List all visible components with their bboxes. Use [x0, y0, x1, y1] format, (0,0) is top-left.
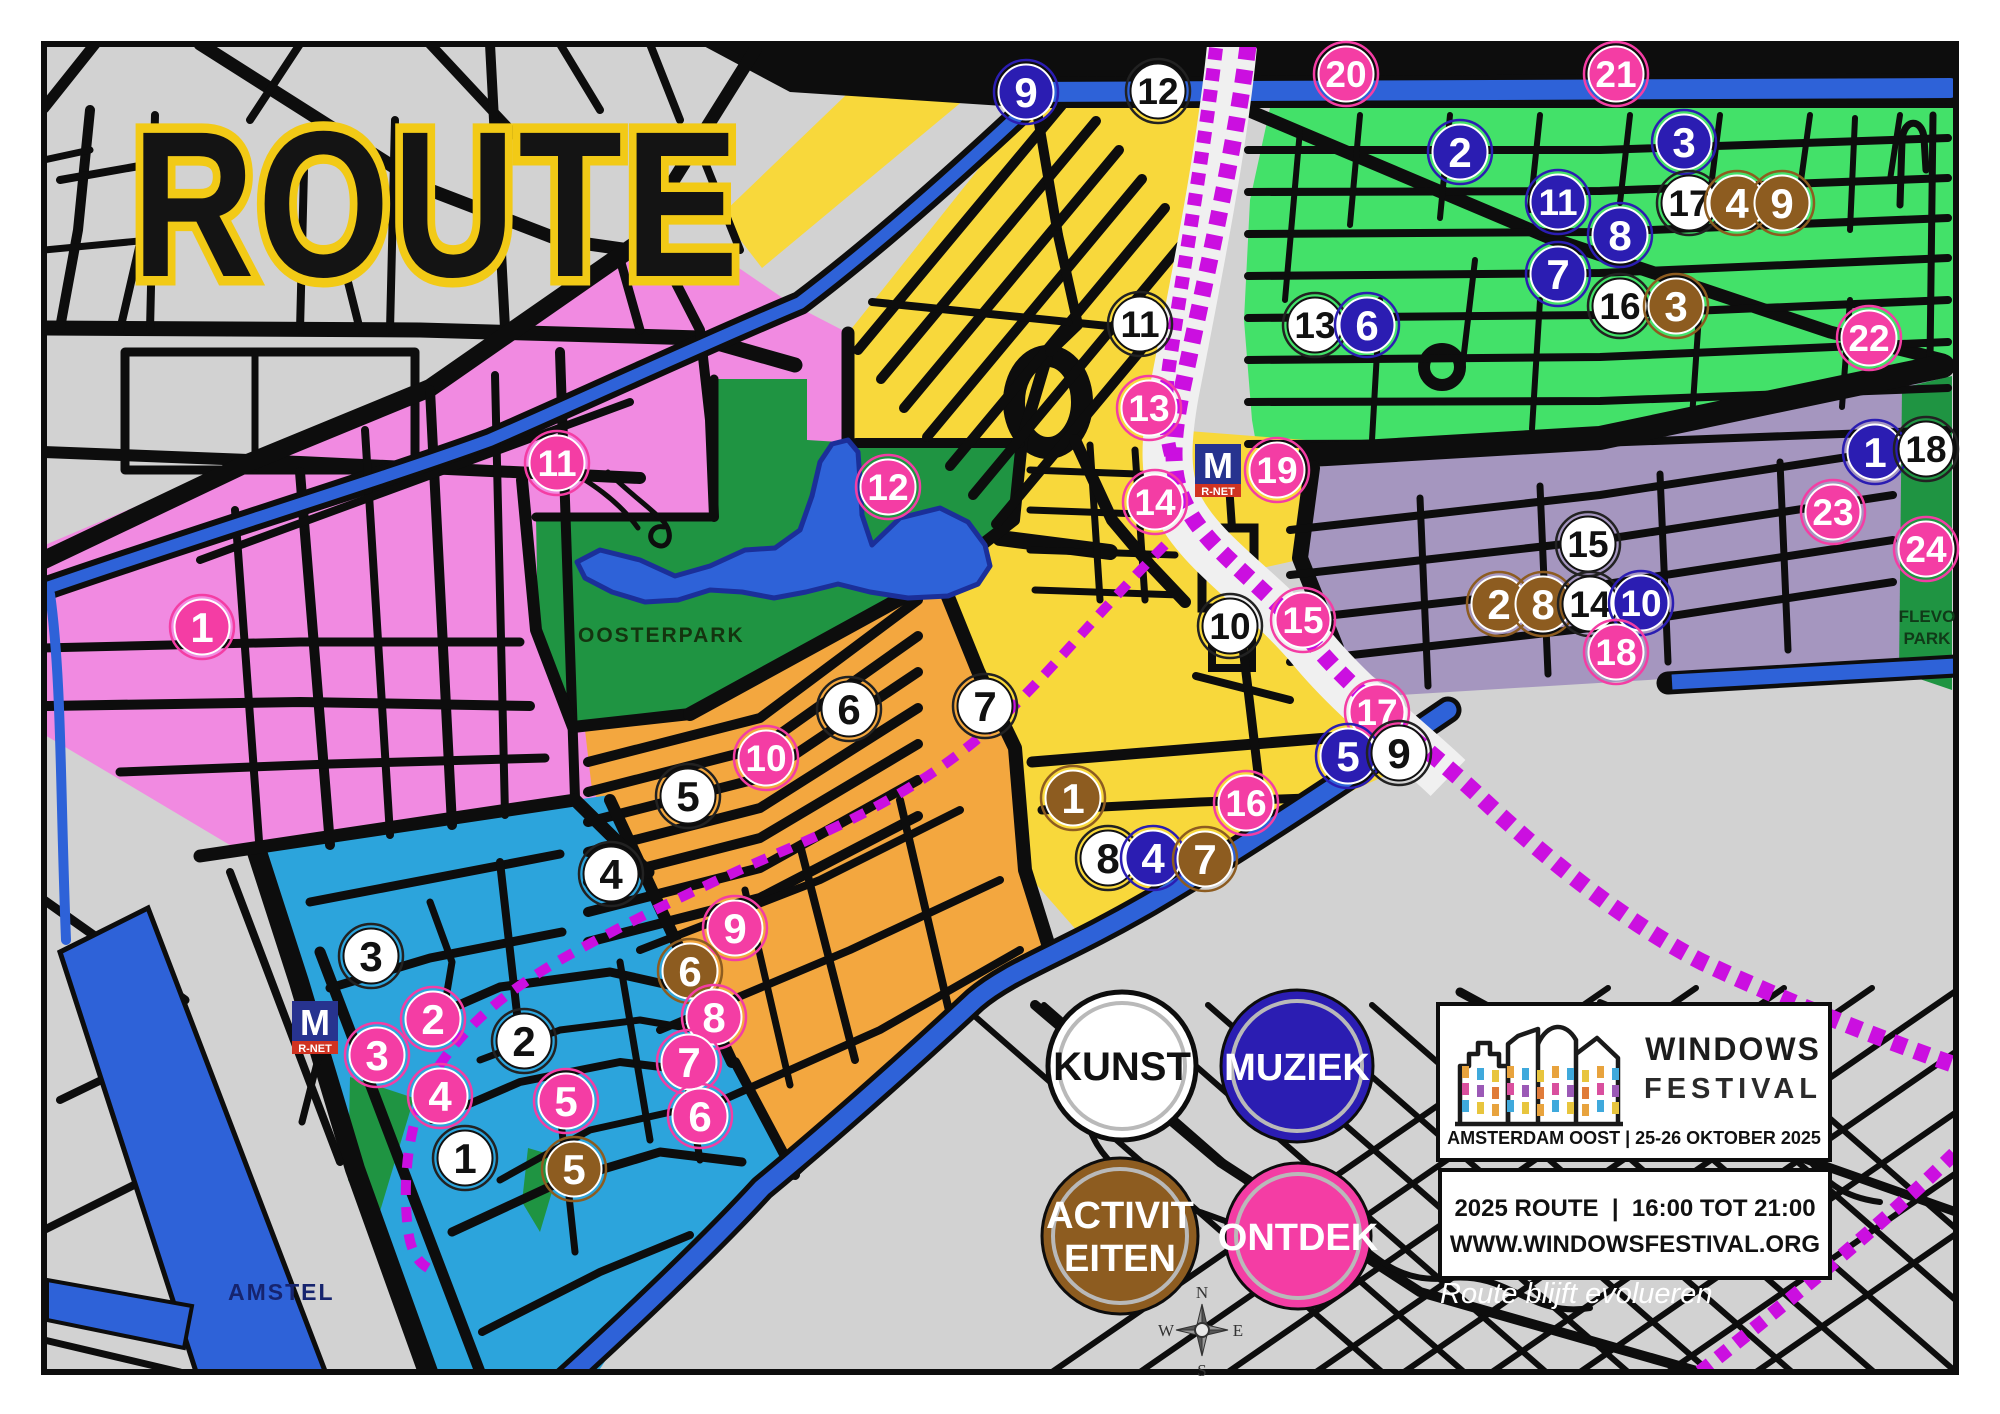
- svg-text:10: 10: [1209, 606, 1250, 647]
- svg-text:1: 1: [1863, 429, 1886, 476]
- svg-text:7: 7: [973, 683, 996, 730]
- svg-text:4: 4: [1141, 835, 1165, 882]
- svg-text:10: 10: [745, 738, 786, 779]
- svg-text:8: 8: [1096, 835, 1119, 882]
- svg-text:9: 9: [1387, 730, 1410, 777]
- svg-text:5: 5: [1336, 733, 1359, 780]
- svg-text:3: 3: [365, 1032, 388, 1079]
- svg-text:AMSTERDAM OOST | 25-26 OKTOBER: AMSTERDAM OOST | 25-26 OKTOBER 2025: [1447, 1128, 1821, 1148]
- svg-text:MUZIEK: MUZIEK: [1224, 1047, 1370, 1089]
- svg-text:1: 1: [190, 604, 213, 651]
- svg-text:AMSTEL: AMSTEL: [228, 1279, 335, 1305]
- svg-text:3: 3: [1664, 283, 1687, 330]
- svg-text:16: 16: [1599, 286, 1640, 327]
- svg-text:18: 18: [1595, 632, 1636, 673]
- svg-text:9: 9: [1014, 69, 1037, 116]
- svg-text:11: 11: [1538, 182, 1577, 223]
- svg-text:2025 ROUTE | 16:00 TOT 21:00: 2025 ROUTE | 16:00 TOT 21:00: [1454, 1195, 1815, 1222]
- svg-text:6: 6: [688, 1093, 711, 1140]
- svg-text:FESTIVAL: FESTIVAL: [1644, 1073, 1822, 1105]
- svg-text:16: 16: [1225, 783, 1266, 824]
- svg-text:13: 13: [1294, 305, 1335, 346]
- svg-text:3: 3: [1672, 119, 1695, 166]
- svg-text:R-NET: R-NET: [298, 1043, 332, 1055]
- svg-text:1: 1: [1061, 775, 1084, 822]
- svg-text:M: M: [300, 1002, 330, 1043]
- svg-text:5: 5: [676, 773, 699, 820]
- svg-text:N: N: [1196, 1283, 1208, 1302]
- svg-text:18: 18: [1905, 429, 1946, 470]
- svg-text:22: 22: [1848, 318, 1889, 359]
- svg-text:7: 7: [1193, 836, 1216, 883]
- svg-text:EITEN: EITEN: [1064, 1238, 1176, 1280]
- svg-text:15: 15: [1282, 600, 1323, 641]
- svg-text:KUNST: KUNST: [1053, 1045, 1191, 1089]
- svg-text:6: 6: [837, 686, 860, 733]
- svg-text:17: 17: [1668, 183, 1709, 224]
- svg-text:1: 1: [453, 1135, 476, 1182]
- svg-text:ONTDEK: ONTDEK: [1218, 1217, 1379, 1259]
- svg-text:2: 2: [1448, 129, 1471, 176]
- svg-text:7: 7: [1546, 251, 1569, 298]
- svg-text:20: 20: [1325, 54, 1366, 95]
- svg-text:23: 23: [1812, 492, 1853, 533]
- svg-text:14: 14: [1134, 482, 1176, 523]
- svg-text:5: 5: [554, 1078, 577, 1125]
- svg-text:M: M: [1203, 445, 1233, 486]
- svg-text:2: 2: [512, 1018, 535, 1065]
- svg-text:4: 4: [1725, 180, 1749, 227]
- svg-text:E: E: [1233, 1321, 1243, 1340]
- svg-text:5: 5: [562, 1146, 585, 1193]
- svg-text:9: 9: [723, 905, 746, 952]
- svg-text:10: 10: [1620, 583, 1661, 624]
- svg-text:8: 8: [1608, 212, 1631, 259]
- svg-text:15: 15: [1567, 524, 1608, 565]
- svg-text:PARK: PARK: [1904, 629, 1952, 648]
- svg-text:W: W: [1158, 1321, 1175, 1340]
- svg-text:OOSTERPARK: OOSTERPARK: [578, 624, 745, 647]
- svg-text:WINDOWS: WINDOWS: [1645, 1031, 1821, 1067]
- svg-text:8: 8: [1531, 581, 1554, 628]
- svg-text:ACTIVIT: ACTIVIT: [1046, 1195, 1194, 1237]
- svg-text:11: 11: [537, 443, 576, 484]
- svg-text:4: 4: [599, 851, 623, 898]
- svg-text:9: 9: [1770, 180, 1793, 227]
- svg-text:13: 13: [1128, 388, 1169, 429]
- svg-text:3: 3: [359, 933, 382, 980]
- svg-text:4: 4: [428, 1073, 452, 1120]
- svg-text:24: 24: [1905, 529, 1947, 570]
- svg-text:ROUTE: ROUTE: [132, 89, 742, 321]
- svg-text:R-NET: R-NET: [1201, 486, 1235, 498]
- svg-text:7: 7: [677, 1039, 700, 1086]
- svg-text:19: 19: [1256, 450, 1297, 491]
- svg-text:6: 6: [1355, 302, 1378, 349]
- svg-text:2: 2: [421, 996, 444, 1043]
- svg-text:14: 14: [1569, 584, 1611, 625]
- svg-text:11: 11: [1120, 304, 1159, 345]
- svg-text:S: S: [1197, 1361, 1206, 1380]
- svg-text:Route blijft evolueren: Route blijft evolueren: [1440, 1278, 1712, 1310]
- svg-text:2: 2: [1487, 581, 1510, 628]
- svg-text:21: 21: [1595, 54, 1636, 95]
- svg-text:12: 12: [867, 467, 908, 508]
- svg-text:FLEVO: FLEVO: [1899, 607, 1956, 626]
- svg-text:WWW.WINDOWSFESTIVAL.ORG: WWW.WINDOWSFESTIVAL.ORG: [1450, 1231, 1820, 1258]
- svg-text:12: 12: [1137, 71, 1178, 112]
